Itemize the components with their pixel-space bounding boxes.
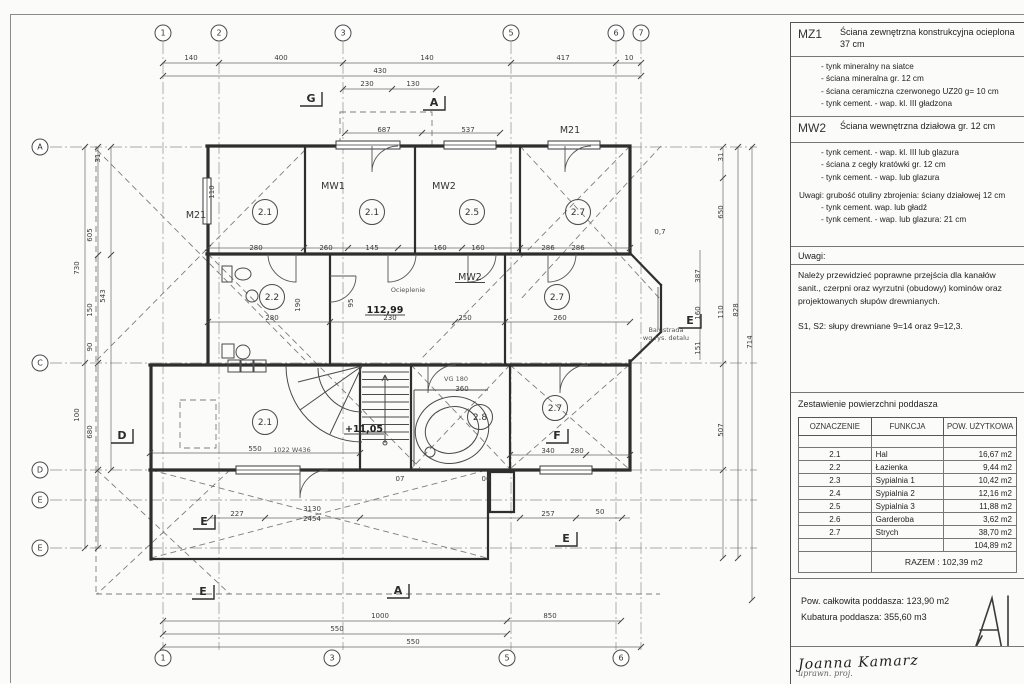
room-number: 2.1 bbox=[258, 208, 272, 218]
dimension-label: 10 bbox=[625, 54, 634, 62]
section-marker: E bbox=[562, 532, 570, 545]
section-marker: D bbox=[117, 429, 126, 442]
grid-bubble-label: 5 bbox=[508, 29, 513, 38]
table-cell bbox=[871, 539, 944, 552]
wall-type-label: M21 bbox=[560, 125, 580, 136]
dimension-label: 3130 bbox=[303, 505, 321, 513]
dimension-label: 260 bbox=[553, 314, 566, 322]
table-cell bbox=[799, 539, 872, 552]
dimension-label: 110 bbox=[717, 305, 725, 318]
dimension-label: 507 bbox=[717, 423, 725, 436]
spec-item: - ściana z cegły kratówki gr. 12 cm bbox=[821, 159, 1017, 171]
table-cell: 38,70 m2 bbox=[944, 526, 1017, 539]
room-number: 2.7 bbox=[548, 404, 562, 414]
dimension-label: 260 bbox=[319, 244, 332, 252]
dimension-label: 543 bbox=[99, 289, 107, 302]
table-cell: 2.3 bbox=[799, 474, 872, 487]
dimension-label: 140 bbox=[420, 54, 433, 62]
section-marker: A bbox=[430, 96, 439, 109]
annotation-label: 1022 W436 bbox=[273, 446, 310, 454]
dimension-label: 100 bbox=[73, 408, 81, 421]
grid-bubble-label: 3 bbox=[329, 654, 334, 663]
spec-item: - ściana mineralna gr. 12 cm bbox=[821, 73, 1017, 85]
table-gap bbox=[871, 436, 944, 448]
spec-item: - tynk mineralny na siatce bbox=[821, 61, 1017, 73]
dimension-label: 605 bbox=[86, 228, 94, 241]
table-cell: 9,44 m2 bbox=[944, 461, 1017, 474]
dimension-label: 31 bbox=[94, 154, 102, 163]
floor-plan: 1404001404171043023013068753728026014516… bbox=[0, 0, 790, 683]
table-cell: 16,67 m2 bbox=[944, 448, 1017, 461]
dimension-label: 160 bbox=[433, 244, 446, 252]
dimension-label: 227 bbox=[230, 510, 243, 518]
grid-bubble-label: 6 bbox=[618, 654, 623, 663]
section-marker: F bbox=[553, 429, 561, 442]
dimension-label: 286 bbox=[571, 244, 585, 252]
dimension-label: 430 bbox=[373, 67, 386, 75]
annotation-label: VG 180 bbox=[444, 375, 468, 383]
room-number: 2.7 bbox=[571, 208, 585, 218]
dimension-label: 190 bbox=[294, 298, 302, 311]
dimension-label: 828 bbox=[732, 303, 740, 316]
dimension-label: 2454 bbox=[303, 515, 321, 523]
grid-bubble-label: 6 bbox=[613, 29, 618, 38]
table-header: OZNACZENIE bbox=[799, 418, 872, 436]
dimension-label: 714 bbox=[746, 335, 754, 349]
wall-type-label: MW2 bbox=[432, 181, 456, 192]
room-number: 2.1 bbox=[365, 208, 379, 218]
table-cell: 104,89 m2 bbox=[944, 539, 1017, 552]
table-total-value: RAZEM : 102,39 m2 bbox=[871, 552, 1016, 573]
table-header: FUNKCJA bbox=[871, 418, 944, 436]
table-cell: Garderoba bbox=[871, 513, 944, 526]
dimension-label: 280 bbox=[265, 314, 278, 322]
bathroom-fixtures bbox=[180, 266, 497, 473]
table-cell: 2.1 bbox=[799, 448, 872, 461]
dimension-label: 130 bbox=[406, 80, 419, 88]
grid-bubble-label: A bbox=[37, 143, 43, 152]
wall-type-mz1: MZ1 Ściana zewnętrzna konstrukcyjna ocie… bbox=[791, 23, 1024, 57]
section-marker: G bbox=[306, 92, 315, 105]
mw2-code: MW2 bbox=[798, 121, 832, 138]
grid-bubble-label: 1 bbox=[160, 654, 165, 663]
room-number: 2.5 bbox=[465, 208, 479, 218]
section-marker: E bbox=[199, 585, 207, 598]
room-number: 2.8 bbox=[473, 413, 488, 423]
toilet bbox=[222, 266, 258, 302]
table-cell: Sypialnia 2 bbox=[871, 487, 944, 500]
dimension-label: 0,7 bbox=[654, 228, 665, 236]
table-row: 2.3Sypialnia 110,42 m2 bbox=[799, 474, 1017, 487]
table-cell: Sypialnia 1 bbox=[871, 474, 944, 487]
annotation-label: Ocieplenie bbox=[391, 286, 425, 294]
note-columns: S1, S2: słupy drewniane 9=14 oraz 9=12,3… bbox=[798, 320, 1017, 333]
dimension-label: 257 bbox=[541, 510, 554, 518]
table-row: 2.2Łazienka9,44 m2 bbox=[799, 461, 1017, 474]
section-marker: E bbox=[200, 515, 208, 528]
table-cell: 2.5 bbox=[799, 500, 872, 513]
table-cell: 11,88 m2 bbox=[944, 500, 1017, 513]
spec-item: - ściana ceramiczna czerwonego UZ20 g= 1… bbox=[821, 86, 1017, 98]
dimension-label: 140 bbox=[184, 54, 197, 62]
mw2-spec-list: - tynk cement. - wap. kl. III lub glazur… bbox=[791, 143, 1024, 247]
spec-item: - tynk cement. wap. lub gładź bbox=[821, 202, 1017, 214]
grid-bubble-label: 2 bbox=[216, 29, 221, 38]
table-row: 2.6Garderoba3,62 m2 bbox=[799, 513, 1017, 526]
dimension-label: 550 bbox=[330, 625, 343, 633]
dimension-label: 280 bbox=[249, 244, 262, 252]
dimension-label: 151 bbox=[694, 341, 702, 354]
mw2-uwagi: Uwagi: grubość otuliny zbrojenia: ściany… bbox=[799, 190, 1017, 202]
bathtub bbox=[407, 387, 498, 473]
general-notes: Należy przewidzieć poprawne przejścia dl… bbox=[791, 265, 1024, 393]
table-cell: Hal bbox=[871, 448, 944, 461]
table-row: 2.4Sypialnia 212,16 m2 bbox=[799, 487, 1017, 500]
annotation-label: Balustrada bbox=[648, 326, 683, 334]
dimension-label: 387 bbox=[694, 269, 702, 282]
level-mark: +11,05 bbox=[345, 424, 383, 435]
dimension-label: 250 bbox=[458, 314, 471, 322]
spec-item: - tynk cement. - wap. kl. III lub glazur… bbox=[821, 147, 1017, 159]
dimension-label: 280 bbox=[570, 447, 583, 455]
dimension-label: 417 bbox=[556, 54, 569, 62]
table-total-row: RAZEM : 102,39 m2 bbox=[799, 552, 1017, 573]
totals-section: Pow. całkowita poddasza: 123,90 m2 Kubat… bbox=[791, 579, 1024, 647]
dimension-label: 90 bbox=[86, 343, 94, 352]
mw2-title: Ściana wewnętrzna działowa gr. 12 cm bbox=[840, 121, 995, 138]
table-gap bbox=[799, 436, 872, 448]
table-cell: 2.6 bbox=[799, 513, 872, 526]
notes-panel: MZ1 Ściana zewnętrzna konstrukcyjna ocie… bbox=[790, 22, 1024, 684]
dimension-label: 286 bbox=[541, 244, 555, 252]
dimension-label: 687 bbox=[377, 126, 390, 134]
annotation-label: wg rys. detalu bbox=[643, 334, 689, 342]
dimension-label: 340 bbox=[541, 447, 554, 455]
dimension-label: 730 bbox=[73, 261, 81, 274]
table-row: 2.5Sypialnia 311,88 m2 bbox=[799, 500, 1017, 513]
table-header: POW. UŻYTKOWA bbox=[944, 418, 1017, 436]
dimension-label: 550 bbox=[248, 445, 261, 453]
dimension-label: 360 bbox=[455, 385, 468, 393]
uwagi-header: Uwagi: bbox=[791, 247, 1024, 265]
table-cell: 2.2 bbox=[799, 461, 872, 474]
section-marker: A bbox=[394, 584, 403, 597]
dimension-label: 150 bbox=[86, 303, 94, 316]
table-subtotal-row: 104,89 m2 bbox=[799, 539, 1017, 552]
dimension-label: 50 bbox=[596, 508, 605, 516]
level-mark: 112,99 bbox=[367, 305, 404, 316]
grid-bubble-label: 5 bbox=[504, 654, 509, 663]
table-cell: 12,16 m2 bbox=[944, 487, 1017, 500]
area-table-title: Zestawienie powierzchni poddasza bbox=[798, 397, 1017, 417]
spec-item: - tynk cement. - wap. lub glazura bbox=[821, 172, 1017, 184]
dimension-label: 400 bbox=[274, 54, 287, 62]
section-marker: E bbox=[686, 314, 694, 327]
grid-bubble-label: E bbox=[37, 544, 42, 553]
area-table-section: Zestawienie powierzchni poddasza OZNACZE… bbox=[791, 393, 1024, 579]
table-cell: 3,62 m2 bbox=[944, 513, 1017, 526]
wall-type-mw2: MW2 Ściana wewnętrzna działowa gr. 12 cm bbox=[791, 117, 1024, 143]
signature-monogram bbox=[970, 592, 1022, 647]
wall-type-label: M21 bbox=[186, 210, 206, 221]
note-sanitary: Należy przewidzieć poprawne przejścia dl… bbox=[798, 269, 1017, 308]
dimension-label: 160 bbox=[471, 244, 484, 252]
dimension-label: 1000 bbox=[371, 612, 389, 620]
grid-bubble-label: 7 bbox=[638, 29, 643, 38]
dimension-label: 850 bbox=[543, 612, 556, 620]
table-cell bbox=[799, 552, 872, 573]
dimension-label: 31 bbox=[717, 153, 725, 162]
dimension-label: 06 bbox=[482, 475, 491, 483]
dimension-label: 230 bbox=[360, 80, 373, 88]
washbasin bbox=[222, 344, 266, 372]
drawing-sheet: { "panel": { "mz1": { "code": "MZ1", "ti… bbox=[0, 0, 1024, 683]
roof-projection-lines bbox=[96, 112, 661, 594]
dimension-label: 145 bbox=[365, 244, 378, 252]
dimension-label: 110 bbox=[208, 185, 216, 198]
spec-item: - tynk cement. - wap. kl. III gładzona bbox=[821, 98, 1017, 110]
dimension-label: 650 bbox=[717, 205, 725, 218]
area-table: OZNACZENIEFUNKCJAPOW. UŻYTKOWA2.1Hal16,6… bbox=[798, 417, 1017, 573]
table-cell: 10,42 m2 bbox=[944, 474, 1017, 487]
furniture-outline bbox=[180, 400, 216, 448]
table-cell: Łazienka bbox=[871, 461, 944, 474]
table-cell: 2.4 bbox=[799, 487, 872, 500]
wall-type-label: MW1 bbox=[321, 181, 345, 192]
table-cell: Sypialnia 3 bbox=[871, 500, 944, 513]
room-number: 2.2 bbox=[265, 293, 279, 303]
table-row: 2.1Hal16,67 m2 bbox=[799, 448, 1017, 461]
table-cell: Strych bbox=[871, 526, 944, 539]
dimension-label: 550 bbox=[406, 638, 419, 646]
grid-bubble-label: E bbox=[37, 496, 42, 505]
mz1-spec-list: - tynk mineralny na siatce- ściana miner… bbox=[791, 57, 1024, 117]
dimension-label: 07 bbox=[396, 475, 405, 483]
wall-type-label: MW2 bbox=[458, 272, 482, 283]
table-cell: 2.7 bbox=[799, 526, 872, 539]
table-row: 2.7Strych38,70 m2 bbox=[799, 526, 1017, 539]
room-number: 2.7 bbox=[550, 293, 564, 303]
signature-section: Joanna Kamarz uprawn. proj. bbox=[791, 647, 1024, 684]
table-gap bbox=[944, 436, 1017, 448]
grid-bubble-label: 3 bbox=[340, 29, 345, 38]
grid-bubble-label: C bbox=[37, 359, 43, 368]
room-number: 2.1 bbox=[258, 418, 272, 428]
dimension-label: 680 bbox=[86, 425, 94, 438]
mz1-code: MZ1 bbox=[798, 27, 832, 52]
spec-item: - tynk cement. - wap. lub glazura: 21 cm bbox=[821, 214, 1017, 226]
grid-bubble-label: D bbox=[37, 466, 43, 475]
dimension-label: 95 bbox=[347, 299, 355, 308]
dimension-label: 537 bbox=[461, 126, 474, 134]
mz1-title: Ściana zewnętrzna konstrukcyjna ocieplon… bbox=[840, 27, 1017, 52]
grid-bubble-label: 1 bbox=[160, 29, 165, 38]
